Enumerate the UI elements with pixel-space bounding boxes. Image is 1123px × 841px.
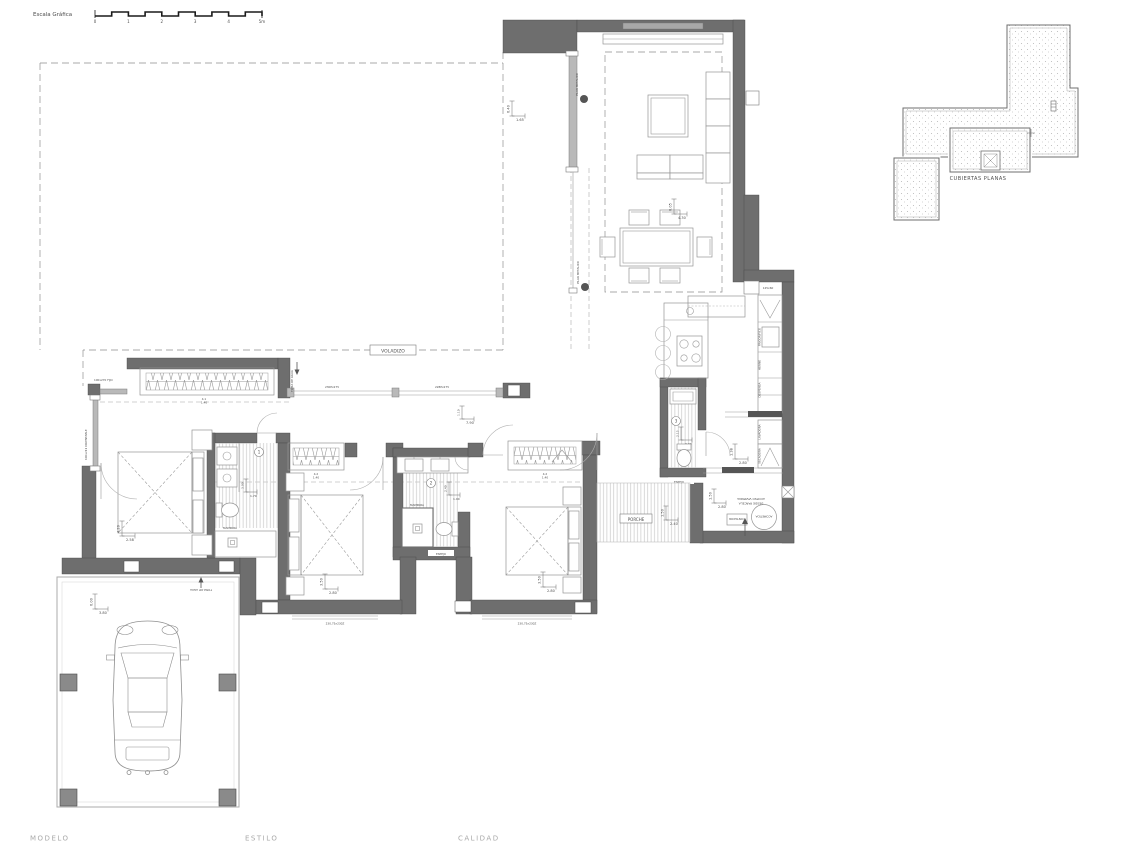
svg-text:6.05: 6.05	[669, 203, 673, 211]
appliance-label: FRIGORIFICO	[758, 327, 762, 346]
scale-bar-steps	[95, 12, 262, 16]
sliding-glass-door	[569, 55, 577, 168]
porche-label: PORCHE	[620, 514, 652, 523]
door-swing-bed3	[483, 425, 513, 455]
svg-text:2.80: 2.80	[718, 505, 726, 509]
window-spec-label: 230,75x230Z	[326, 622, 345, 626]
water-intake-mark: TOMA DE AGUA	[190, 577, 213, 592]
kitchen-counter	[688, 296, 745, 317]
svg-text:6.40: 6.40	[507, 105, 511, 113]
appliance-label: LAVADORA	[758, 424, 762, 439]
dim-bed2: 3.50 2.80	[320, 574, 339, 595]
footer-calidad: CALIDAD	[458, 835, 500, 841]
carport-post	[219, 674, 236, 691]
voladizo-label: VOLADIZO	[370, 345, 416, 355]
svg-text:1.90: 1.90	[453, 497, 460, 501]
carport-post	[60, 789, 77, 806]
fixed-window	[100, 389, 127, 394]
svg-text:1.65: 1.65	[516, 118, 524, 122]
contador-label: CONTADOR	[729, 517, 745, 521]
wardrobe-size: 1.40	[542, 476, 548, 480]
pilar-label: PILAR METALICO	[575, 72, 579, 96]
kitchen-island-icon	[664, 303, 708, 378]
dim-living: 6.40 1.65	[507, 101, 526, 122]
shower-icon	[402, 508, 433, 547]
wardrobe-1: 4.1 1.40	[140, 368, 274, 405]
svg-text:VOLADIZO: VOLADIZO	[381, 349, 405, 355]
svg-text:2: 2	[430, 481, 433, 486]
dining-table-icon	[600, 210, 712, 283]
svg-text:3.50: 3.50	[538, 576, 542, 584]
appliance-label: SECADORA	[758, 448, 762, 464]
svg-text:4.20: 4.20	[117, 525, 121, 533]
meter-box-icon	[782, 486, 794, 498]
bed-3-icon	[506, 487, 581, 593]
carport-post	[60, 674, 77, 691]
stool-icon	[656, 346, 671, 361]
scale-tick: 0	[94, 19, 97, 24]
svg-text:6.00: 6.00	[90, 598, 94, 606]
scale-tick: 4	[227, 19, 230, 24]
pilar-label: PILAR METALICO	[576, 260, 580, 284]
coffee-table-icon	[648, 95, 688, 137]
svg-text:1.10: 1.10	[457, 409, 461, 416]
stool-icon	[656, 365, 671, 380]
bed-2-icon	[286, 473, 363, 595]
dining-area: 6.05 4.30	[600, 199, 712, 283]
mampara-label: MAMPARA	[410, 503, 424, 507]
door-swing-terrace	[101, 463, 137, 499]
svg-text:4.30: 4.30	[678, 216, 686, 220]
wardrobe-size: 1.40	[201, 401, 207, 405]
water-intake-mark: TOMA DE AGUA	[290, 362, 300, 393]
window-spec-label: 230Px275	[325, 385, 339, 389]
bedroom-2: 4.2 1.40 3.50 2.80	[286, 443, 383, 595]
graphic-scale-bar: Escala Gráfica 0 1 2 3 4 5m	[33, 10, 265, 24]
footer-estilo: ESTILO	[245, 835, 278, 841]
window-spec-label: 100x270 FIJO	[94, 378, 113, 382]
door-swing-bed2	[350, 457, 383, 490]
living-room: PILAR METALICO PILAR METALICO 6.40 1.65	[507, 23, 760, 293]
svg-text:3: 3	[675, 419, 678, 424]
dim-hall: 1.10 7.90	[457, 406, 475, 425]
svg-text:TOMA DE AGUA: TOMA DE AGUA	[290, 370, 294, 393]
porch: PORCHE 1.50 2.40	[597, 483, 690, 542]
svg-text:3.50: 3.50	[320, 578, 324, 586]
window-spec-label: 100x211 ORIENTABLE	[84, 429, 88, 460]
svg-text:2.80: 2.80	[547, 589, 555, 593]
dim-laundry: 1.38 2.80	[730, 444, 749, 465]
svg-text:2.40: 2.40	[670, 522, 678, 526]
kitchen	[656, 296, 746, 380]
stool-icon	[656, 327, 671, 342]
svg-text:2.80: 2.80	[739, 461, 747, 465]
floor-plan-drawing: Escala Gráfica 0 1 2 3 4 5m CUBIERTAS PL…	[0, 0, 1123, 841]
scale-tick: 1	[127, 19, 130, 24]
steel-column-icon	[580, 95, 588, 103]
svg-text:3.80: 3.80	[99, 611, 107, 615]
footer-titles: MODELO ESTILO CALIDAD	[30, 835, 500, 841]
dashed-guides: VOLADIZO	[40, 52, 722, 482]
svg-text:2.40: 2.40	[444, 485, 448, 492]
svg-text:1: 1	[258, 450, 261, 455]
niche-size-label: 125x60	[763, 286, 774, 290]
wardrobe-size: 1.40	[313, 476, 319, 480]
roof-inset-label: CUBIERTAS PLANAS	[950, 176, 1007, 182]
toilet-icon	[436, 522, 458, 536]
svg-text:1.50: 1.50	[661, 509, 665, 517]
dim-entry: 1.50 2.80	[709, 489, 727, 509]
scale-label: Escala Gráfica	[33, 11, 72, 18]
svg-text:1.50: 1.50	[709, 492, 713, 500]
appliance-column: 125x60 FRIGORIFICO HORNO DESPENSA LAVADO…	[725, 281, 782, 468]
double-sink-icon	[397, 457, 468, 473]
carport-post	[219, 789, 236, 806]
access-label-1: ACCESO VIVIENDA	[736, 497, 765, 501]
door-swing-bath1	[257, 413, 277, 433]
skylight-icon	[981, 151, 1000, 170]
bathroom-1: 1 3.00 1.70 MAMPARA	[215, 443, 278, 557]
appliance-label: DESPENSA	[758, 382, 762, 397]
acometida-label: ACOMETIDA	[756, 515, 773, 519]
scale-tick: 5m	[259, 19, 266, 24]
dim-garage: 6.00 3.80	[90, 594, 109, 615]
access-label-2: DESDE PARCELA	[738, 502, 764, 506]
toilet-icon	[216, 503, 239, 517]
garage-roof	[894, 158, 939, 220]
door-swing-bath3	[706, 432, 730, 456]
sliding-door-hall	[725, 411, 782, 417]
wall-niche	[746, 91, 759, 105]
svg-text:3.00: 3.00	[241, 482, 245, 489]
window-spec-label: 230,75x230Z	[518, 622, 537, 626]
car-icon	[107, 621, 189, 775]
garage-carport: 6.00 3.80 TOMA DE AGUA	[57, 577, 239, 807]
side-window	[93, 398, 98, 468]
washbasin-icon	[670, 389, 696, 404]
high-window	[623, 23, 703, 29]
svg-text:2.15: 2.15	[676, 430, 680, 437]
svg-text:1.70: 1.70	[250, 494, 257, 498]
roof-plan-inset: CUBIERTAS PLANAS	[894, 25, 1078, 220]
svg-text:2.80: 2.80	[329, 591, 337, 595]
window-niche	[744, 281, 759, 294]
svg-text:PORCHE: PORCHE	[628, 517, 645, 522]
mampara-label: MAMPARA	[223, 526, 237, 530]
appliance-label: HORNO	[758, 359, 762, 370]
entrance-sliding-door	[703, 467, 783, 473]
scale-tick: 2	[161, 19, 164, 24]
svg-text:2.58: 2.58	[126, 538, 134, 542]
roof-vent-icon	[1051, 101, 1056, 111]
shower-icon	[215, 531, 276, 557]
espejo-label: ESPEJO	[436, 552, 447, 556]
scale-tick: 3	[194, 19, 197, 24]
entry-court: ACCESO VIVIENDA DESDE PARCELA ACOMETIDA …	[703, 467, 794, 536]
svg-text:TOMA DE AGUA: TOMA DE AGUA	[190, 588, 213, 592]
bedroom-3: 4.2 1.40 3.50 2.80	[483, 425, 582, 593]
steel-column-icon	[581, 283, 589, 291]
toilet-icon	[677, 444, 691, 467]
footer-modelo: MODELO	[30, 835, 70, 841]
south-windows: 230,75x230Z 230,75x230Z	[292, 616, 572, 626]
bathroom-2: 2 2.40 1.90 MAMPARA ESPEJO	[397, 457, 468, 556]
window-spec-label: 228Px275	[435, 385, 449, 389]
wardrobe-3: 4.2 1.40	[508, 441, 582, 480]
svg-text:7.90: 7.90	[466, 421, 474, 425]
